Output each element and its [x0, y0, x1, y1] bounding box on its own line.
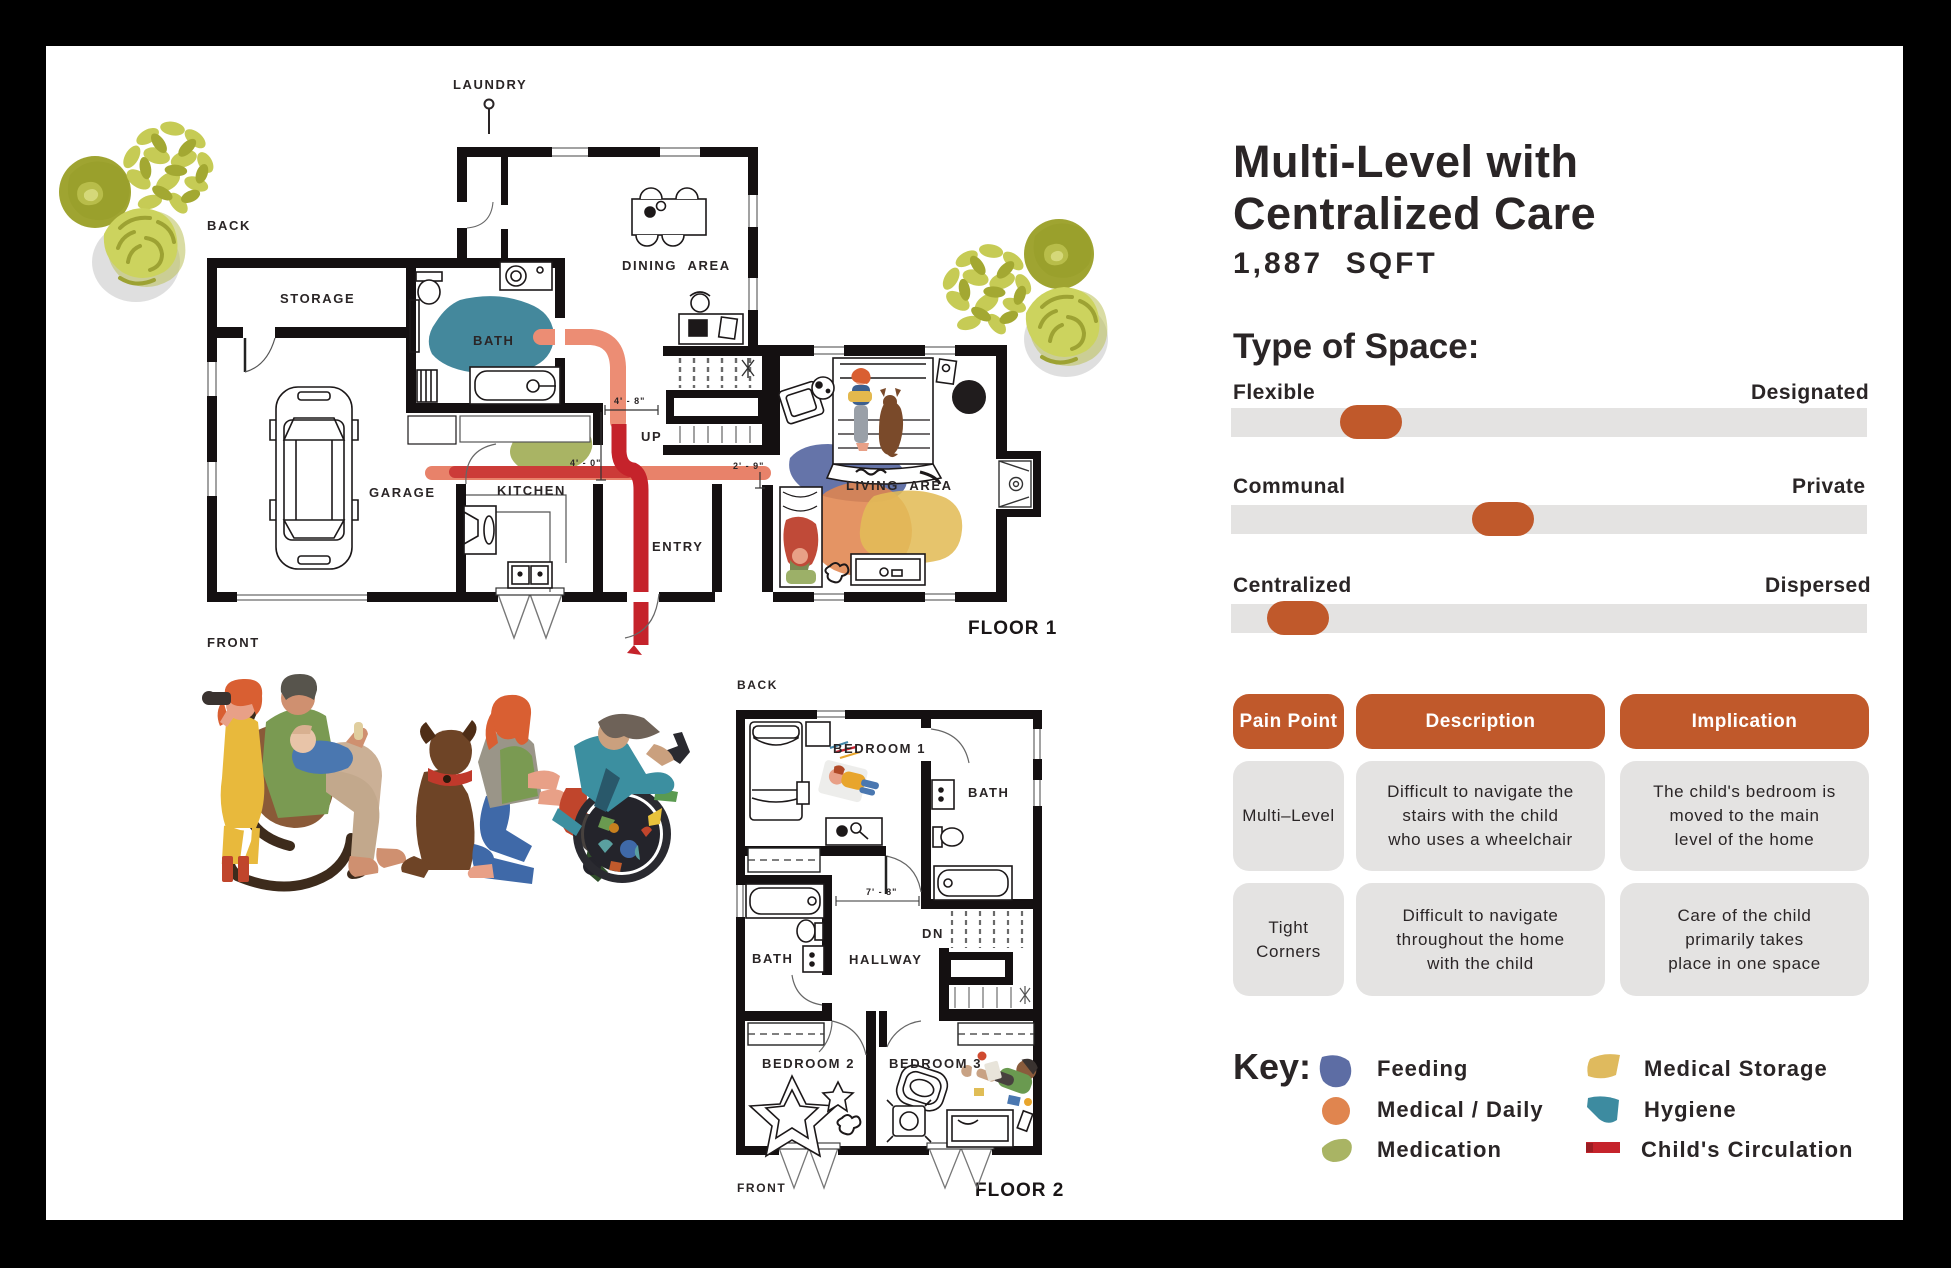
- svg-text:4' - 0": 4' - 0": [570, 458, 601, 468]
- svg-text:FLOOR 1: FLOOR 1: [968, 618, 1057, 639]
- svg-text:BATH: BATH: [968, 785, 1010, 800]
- svg-text:BEDROOM 1: BEDROOM 1: [833, 741, 926, 756]
- svg-text:UP: UP: [641, 429, 662, 444]
- svg-text:GARAGE: GARAGE: [369, 485, 436, 500]
- svg-text:BATH: BATH: [752, 951, 794, 966]
- svg-text:7' - 8": 7' - 8": [866, 887, 897, 897]
- svg-text:STORAGE: STORAGE: [280, 291, 355, 306]
- svg-text:FLOOR 2: FLOOR 2: [975, 1180, 1064, 1201]
- svg-text:DINING AREA: DINING AREA: [622, 258, 731, 273]
- svg-text:LIVING AREA: LIVING AREA: [846, 478, 953, 493]
- svg-text:2' - 9": 2' - 9": [733, 461, 764, 471]
- svg-text:FRONT: FRONT: [737, 1181, 786, 1195]
- svg-text:ENTRY: ENTRY: [652, 539, 704, 554]
- svg-text:DN: DN: [922, 926, 944, 941]
- svg-text:BEDROOM 2: BEDROOM 2: [762, 1056, 855, 1071]
- svg-text:BACK: BACK: [737, 678, 778, 692]
- svg-text:BATH: BATH: [473, 333, 515, 348]
- svg-text:4' - 8": 4' - 8": [614, 396, 645, 406]
- svg-text:KITCHEN: KITCHEN: [497, 483, 566, 498]
- svg-text:LAUNDRY: LAUNDRY: [453, 77, 527, 92]
- svg-text:HALLWAY: HALLWAY: [849, 952, 923, 967]
- svg-text:BEDROOM 3: BEDROOM 3: [889, 1056, 982, 1071]
- svg-text:BACK: BACK: [207, 218, 251, 233]
- svg-text:FRONT: FRONT: [207, 635, 260, 650]
